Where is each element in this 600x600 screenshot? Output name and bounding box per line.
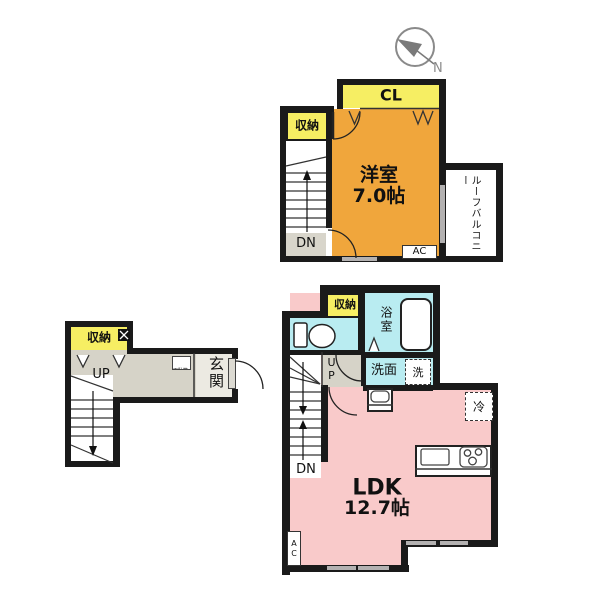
floorplan: AC AC 洗 冷 下駄箱 <box>0 0 600 600</box>
bathroom-label: 浴室 <box>377 306 392 342</box>
closet-label: CL <box>380 88 402 105</box>
refrigerator-label: 冷 <box>473 398 485 415</box>
refrigerator-space: 冷 <box>465 392 493 421</box>
ldk-size-label: 12.7帖 <box>344 499 410 519</box>
roof-balcony-label: ルーフバルコニー <box>462 175 479 255</box>
window <box>440 185 445 243</box>
wall <box>361 355 366 386</box>
stairs-up-main-label: UP <box>324 356 337 384</box>
window <box>358 566 389 570</box>
laundry-label: 洗 <box>413 364 424 380</box>
wall <box>320 285 440 293</box>
wall <box>288 350 363 355</box>
western-room-label: 洋室 <box>360 166 398 186</box>
wall <box>358 293 365 355</box>
kitchen-counter <box>415 445 492 477</box>
wall <box>363 352 433 358</box>
ac-main-label: AC <box>290 539 299 559</box>
storage-main-label: 収納 <box>334 299 356 311</box>
compass-icon <box>396 28 434 66</box>
wall <box>65 321 133 327</box>
bathroom-fill <box>365 293 433 352</box>
front-door-panel <box>228 358 236 389</box>
ac-upper-label: AC <box>413 247 427 258</box>
storage-entrance-label: 収納 <box>87 332 111 345</box>
window <box>406 541 436 545</box>
wall <box>337 79 343 109</box>
window <box>440 541 468 545</box>
stairs-entrance-fill <box>71 375 113 461</box>
wall <box>440 163 503 170</box>
wall <box>65 321 71 467</box>
stairs-main-fill <box>290 352 321 478</box>
wall <box>113 397 120 467</box>
wall <box>321 385 328 462</box>
compass-north-label: N <box>433 62 443 76</box>
shoe-cabinet: 下駄箱 <box>172 356 191 370</box>
genkan-label: 玄関 <box>206 356 223 394</box>
stairs-up-entrance-label: UP <box>92 368 109 382</box>
wall <box>433 285 440 390</box>
stairs-down-upper-label: DN <box>296 237 316 251</box>
stairs-down-main-label: DN <box>296 463 316 477</box>
washbasin <box>367 388 393 412</box>
wall <box>433 383 498 390</box>
wall <box>113 397 238 403</box>
ac-unit-main: AC <box>287 531 301 566</box>
storage-upper-label: 収納 <box>295 120 319 133</box>
ac-unit-upper: AC <box>402 245 437 259</box>
toilet-room <box>290 318 358 350</box>
wall <box>65 461 120 467</box>
wall <box>496 163 503 262</box>
wall <box>280 256 503 262</box>
wall <box>326 112 332 228</box>
window <box>327 566 356 570</box>
wall <box>127 348 238 354</box>
wall <box>337 79 445 85</box>
stairs-upper <box>286 157 326 232</box>
western-room-size: 7.0帖 <box>353 187 406 207</box>
wall <box>280 106 286 262</box>
laundry-space: 洗 <box>405 359 431 385</box>
window <box>342 257 377 261</box>
shoe-cabinet-label: 下駄箱 <box>173 368 188 370</box>
washroom-label: 洗面 <box>371 364 397 378</box>
